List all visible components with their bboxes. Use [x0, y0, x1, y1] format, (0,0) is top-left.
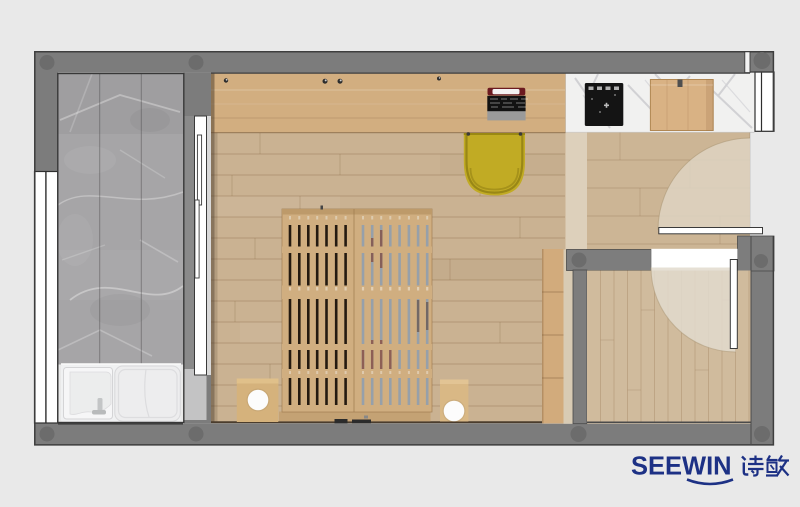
svg-text:SEEWIN: SEEWIN	[631, 453, 732, 481]
